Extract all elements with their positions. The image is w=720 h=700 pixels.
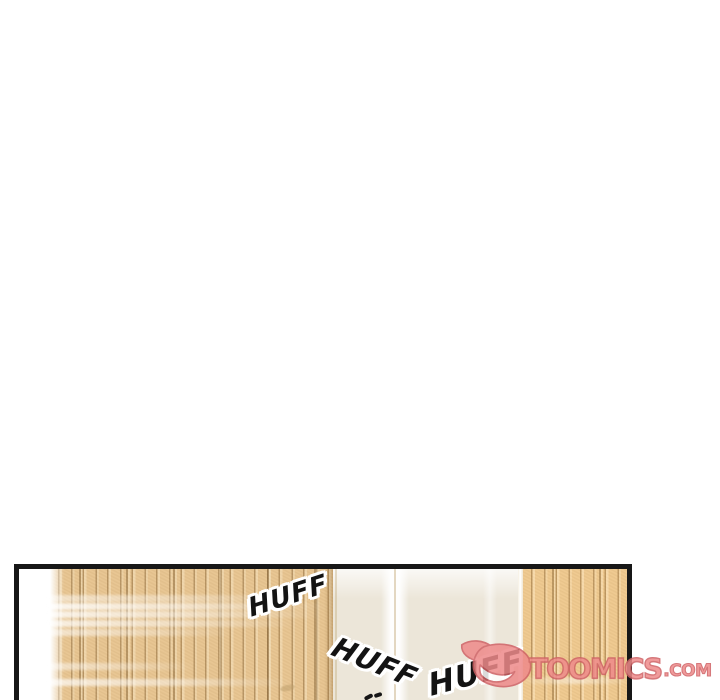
light-streak [45,679,291,686]
wall-edge-line [335,569,337,700]
light-streak [45,629,235,636]
watermark-suffix-text: .COM [663,661,711,681]
light-streak [523,677,627,684]
webtoon-page: HUFF HUFF HUFF TOOMICS .COM [0,0,720,700]
light-streak [45,663,195,670]
